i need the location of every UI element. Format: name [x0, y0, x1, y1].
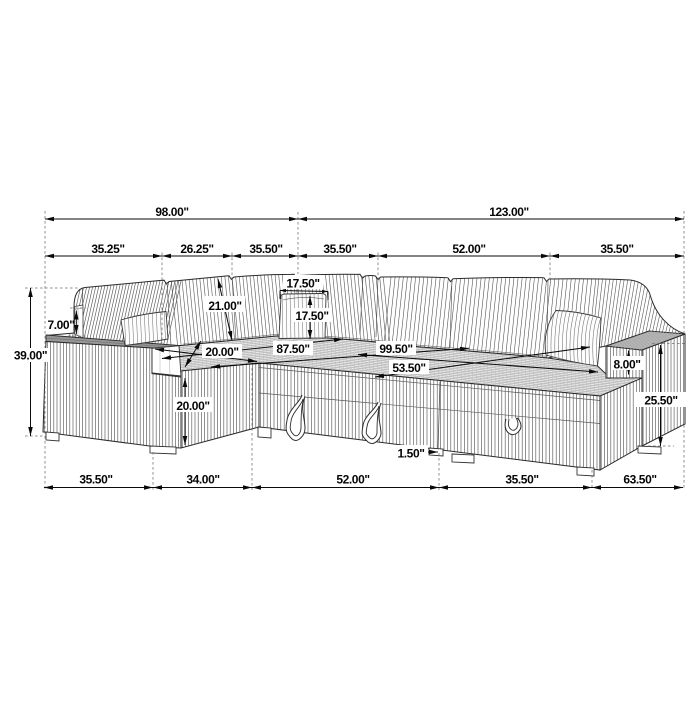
- svg-text:1.50": 1.50": [397, 447, 424, 461]
- svg-text:87.50": 87.50": [276, 342, 309, 356]
- svg-text:63.50": 63.50": [623, 473, 656, 487]
- svg-text:20.00": 20.00": [176, 399, 209, 413]
- svg-text:20.00": 20.00": [205, 345, 238, 359]
- svg-text:123.00": 123.00": [489, 205, 529, 219]
- svg-text:35.50": 35.50": [249, 242, 282, 256]
- svg-text:7.00": 7.00": [47, 318, 74, 332]
- svg-text:35.50": 35.50": [600, 242, 633, 256]
- svg-text:39.00": 39.00": [14, 349, 47, 363]
- svg-text:21.00": 21.00": [208, 299, 241, 313]
- svg-text:17.50": 17.50": [295, 309, 328, 323]
- svg-text:52.00": 52.00": [452, 242, 485, 256]
- svg-text:99.50": 99.50": [379, 342, 412, 356]
- svg-text:34.00": 34.00": [186, 473, 219, 487]
- svg-text:35.50": 35.50": [505, 473, 538, 487]
- svg-text:26.25": 26.25": [180, 242, 213, 256]
- svg-text:8.00": 8.00": [613, 358, 640, 372]
- svg-text:53.50": 53.50": [392, 361, 425, 375]
- svg-text:35.50": 35.50": [323, 242, 356, 256]
- svg-text:25.50": 25.50": [644, 394, 677, 408]
- svg-text:52.00": 52.00": [336, 473, 369, 487]
- svg-text:98.00": 98.00": [155, 205, 188, 219]
- svg-text:35.25": 35.25": [91, 242, 124, 256]
- svg-text:35.50": 35.50": [79, 473, 112, 487]
- svg-text:17.50": 17.50": [286, 277, 319, 291]
